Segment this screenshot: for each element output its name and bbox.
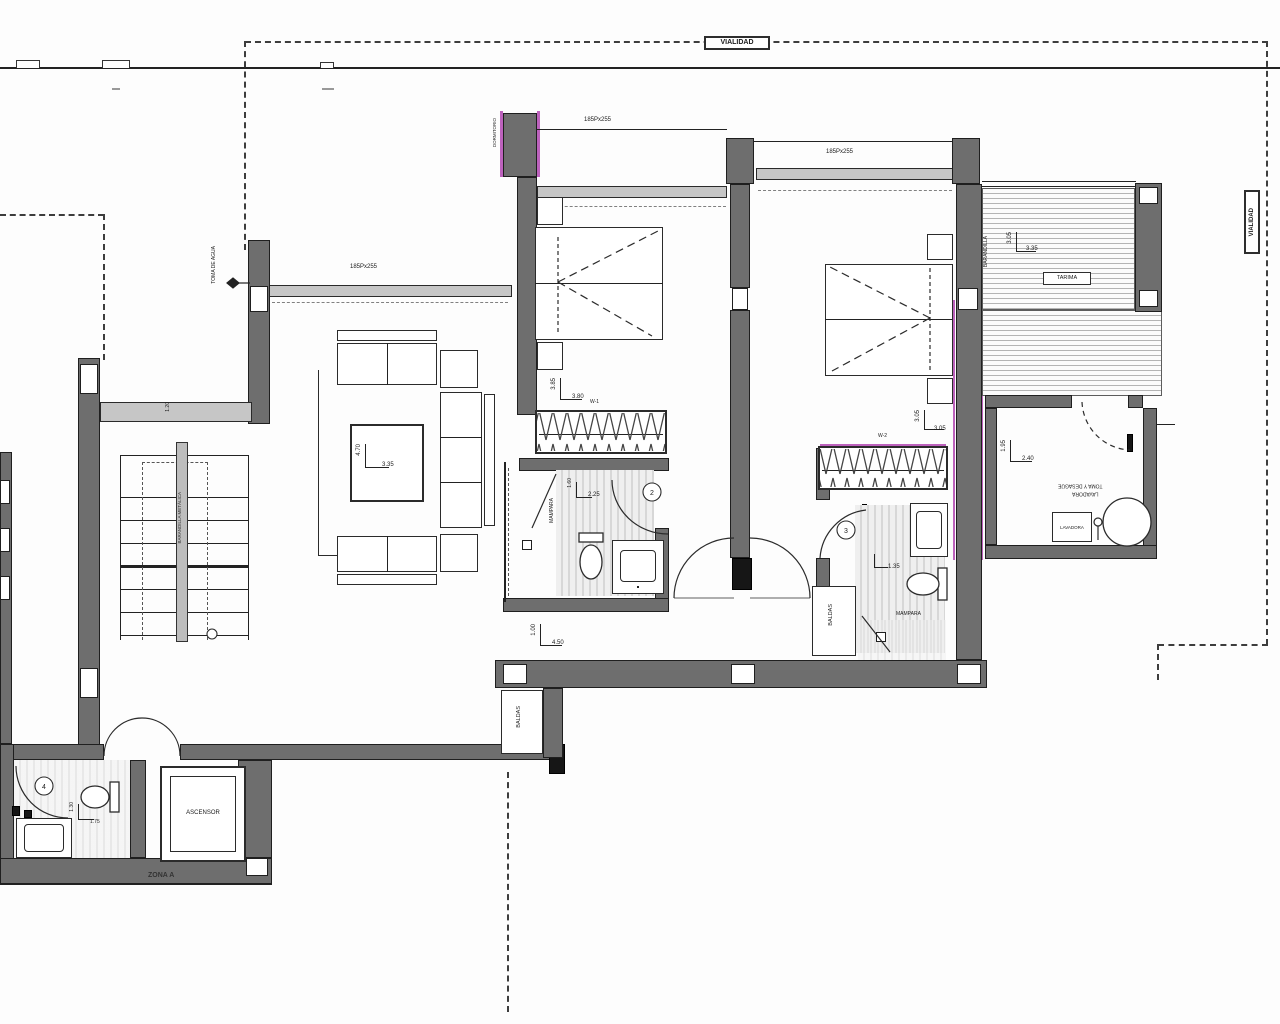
window-dash-line xyxy=(272,302,508,303)
terrace-rail-label: BARANDILLA xyxy=(984,236,989,267)
wall-lavadero-left xyxy=(985,408,997,545)
dim-terraza-v: 3.05 xyxy=(1007,232,1013,244)
door-arc-hall-right xyxy=(750,538,810,598)
wall-accent xyxy=(953,300,955,560)
wall-entry-band xyxy=(0,744,104,760)
closet-label: BALDAS xyxy=(829,604,835,626)
dim-aseo-v: 1.30 xyxy=(70,802,75,812)
wall-pillar xyxy=(503,113,537,177)
pillar-inset xyxy=(731,664,755,684)
washing-machine-label: LAVADORA xyxy=(1052,524,1092,532)
dim-lavadero-v: 1.95 xyxy=(1001,440,1007,452)
shower2-area xyxy=(858,620,946,660)
terrace-deck-upper xyxy=(982,188,1135,310)
wall-lavadero-bottom xyxy=(985,545,1157,559)
tarima-label-box: TARIMA xyxy=(1043,272,1091,285)
tarima-label: TARIMA xyxy=(1057,276,1077,282)
window-terrace-right xyxy=(1139,187,1158,204)
sofa-divider xyxy=(440,482,482,483)
scale-notch xyxy=(102,60,130,68)
bed-dorm2 xyxy=(825,264,953,376)
window-terrace-right xyxy=(1139,290,1158,307)
nightstand xyxy=(927,234,953,260)
wall-bedroom1-left xyxy=(517,177,537,415)
wall-end-cap xyxy=(732,558,752,590)
door-arc-lavadero xyxy=(1082,402,1130,450)
scale-tick xyxy=(112,88,120,90)
street-label: VIALIDAD xyxy=(720,39,753,46)
facade-line xyxy=(537,129,727,130)
vanity-basin xyxy=(916,511,942,549)
sofa-corner-seat xyxy=(440,350,478,388)
dormitorio-tag: DORMITORIO xyxy=(493,118,498,147)
dim-hall-v: 1.00 xyxy=(531,624,537,636)
sofa-back xyxy=(337,574,437,585)
dim-dorm1-tag: W-1 xyxy=(590,400,599,405)
pillar-inset xyxy=(957,664,981,684)
elevator-label: ASCENSOR xyxy=(170,808,236,818)
window-salon xyxy=(268,285,512,297)
nightstand xyxy=(537,342,563,370)
dim-salon-v: 4.70 xyxy=(356,444,362,456)
wall-accent xyxy=(537,111,540,177)
boundary-dashed xyxy=(1157,644,1159,680)
sofa-back xyxy=(484,394,495,526)
dim-corner xyxy=(78,804,94,820)
door-arc-entrance-left xyxy=(104,718,142,756)
mampara-label: MAMPARA xyxy=(550,498,555,523)
scale-notch xyxy=(16,60,40,68)
wall-pillar xyxy=(952,138,980,184)
bed-center-line xyxy=(825,319,953,320)
sofa-divider xyxy=(387,536,388,572)
window-left xyxy=(80,668,98,698)
wall-lavadero-right xyxy=(1143,408,1157,548)
street-label-right: VIALIDAD xyxy=(1249,208,1255,236)
closet-label: BALDAS xyxy=(517,706,523,728)
window-center xyxy=(732,288,748,310)
wall-closet-right xyxy=(543,688,563,758)
boundary-dashed xyxy=(103,214,105,360)
stair-rail-label: BARANDILLA METÁLICA xyxy=(178,492,183,544)
closet-rod xyxy=(539,434,663,435)
door-arc-hall-left xyxy=(674,538,734,598)
sofa-right xyxy=(440,392,482,528)
shower-drain xyxy=(522,540,532,550)
sofa-back xyxy=(337,330,437,341)
nightstand xyxy=(927,378,953,404)
boundary-tie-line xyxy=(1157,424,1175,425)
stair-rail xyxy=(248,455,249,640)
window-terrace xyxy=(958,288,978,310)
terrace-deck-lower xyxy=(982,310,1162,396)
site-top-line xyxy=(0,67,1280,69)
window-far-left xyxy=(0,576,10,600)
pillar-inset xyxy=(503,664,527,684)
closet-dorm1 xyxy=(535,410,667,454)
window-dash-line xyxy=(540,206,726,207)
dim-bath1-v: 1.60 xyxy=(568,478,573,488)
dim-aseo-h: 1.75 xyxy=(90,820,100,825)
dim-dorm1-h: 3.80 xyxy=(572,394,584,400)
water-intake-arrow xyxy=(227,278,250,288)
door-arc-entrance-right xyxy=(142,718,180,756)
dim-terraza-h: 3.35 xyxy=(1026,246,1038,252)
sofa-divider xyxy=(440,437,482,438)
dim-paso: 1.20 xyxy=(166,402,171,412)
door-number-bath2: 3 xyxy=(844,528,848,535)
window-left xyxy=(80,364,98,394)
window-bedroom2 xyxy=(756,168,954,180)
vanity-basin xyxy=(620,550,656,582)
terrace-edge xyxy=(982,181,1136,182)
closet-dorm2 xyxy=(818,446,948,490)
wall-bath1-leftline xyxy=(504,462,506,602)
window-bedroom1 xyxy=(537,186,727,198)
wall-toma-column xyxy=(248,240,270,424)
sofa-divider xyxy=(387,343,388,385)
street-label-box-right: VIALIDAD xyxy=(1244,190,1260,254)
scale-tick xyxy=(322,88,334,90)
toma-desague-label-1: TOMA Y DESAGÜE xyxy=(1058,482,1102,487)
dim-hall-h: 4.50 xyxy=(552,640,564,646)
wall-lavadero-stub xyxy=(1128,395,1143,408)
wall-lavadero-top xyxy=(985,395,1072,408)
wall-left-band xyxy=(100,402,252,422)
window-label-salon: 185Px255 xyxy=(350,264,377,270)
boundary-dashed xyxy=(0,214,104,216)
stair-void-dashed xyxy=(142,462,208,640)
nightstand xyxy=(537,197,563,225)
street-label-box: VIALIDAD xyxy=(704,36,770,50)
dim-salon-h: 3.35 xyxy=(382,462,394,468)
wall-pillar xyxy=(726,138,754,184)
toma-agua-label: TOMA DE AGUA xyxy=(212,246,217,284)
dim-lavadero-h: 2.40 xyxy=(1022,456,1034,462)
dim-corner xyxy=(874,554,888,568)
dim-dorm2-tag: W-2 xyxy=(878,434,887,439)
boundary-dashed xyxy=(1266,41,1268,645)
facade-line xyxy=(754,141,954,142)
door-leaf xyxy=(1127,434,1133,452)
window-dash-line xyxy=(758,190,952,191)
dim-bath2-h: 1.35 xyxy=(888,564,900,570)
stair-newel xyxy=(207,629,217,639)
window-label-dorm2: 185Px255 xyxy=(826,149,853,155)
zone-label: ZONA A xyxy=(148,872,174,879)
scale-notch xyxy=(320,62,334,68)
window-far-left xyxy=(0,480,10,504)
bed-center-line xyxy=(535,283,663,284)
toma-desague-label-2: LAVADORA xyxy=(1072,490,1099,495)
window-label-dorm1: 185Px255 xyxy=(584,117,611,123)
mampara-label: MAMPARA xyxy=(896,612,921,617)
window-far-left xyxy=(0,528,10,552)
descalcificador-label: DESCALCIFICADOR xyxy=(1101,518,1153,526)
wall-center-upper xyxy=(730,184,750,288)
vanity-basin xyxy=(24,824,64,852)
vanity-dot xyxy=(637,586,639,588)
shower1-area xyxy=(508,468,554,596)
pillar-inset xyxy=(246,858,268,876)
porch-step-line xyxy=(0,884,272,885)
wall-bath1-bottom xyxy=(503,598,669,612)
dim-dorm1-v: 3.85 xyxy=(551,378,557,390)
boundary-dashed xyxy=(244,41,246,250)
wall-bedroom2-right xyxy=(956,184,982,660)
door-leaf xyxy=(12,806,20,816)
door-leaf xyxy=(24,810,32,818)
window-toma-column xyxy=(250,286,268,312)
closet-rod xyxy=(822,470,944,471)
dim-bath1-h: 2.25 xyxy=(588,492,600,498)
dim-dorm2-h: 3.05 xyxy=(934,426,946,432)
terrace-edge xyxy=(982,186,1136,187)
boundary-dashed xyxy=(1158,644,1268,646)
sofa-corner-seat xyxy=(440,534,478,572)
floor-plan: VIALIDAD VIALIDAD xyxy=(0,0,1280,1024)
boundary-dashed xyxy=(507,772,509,1012)
dim-dorm2-v: 3.05 xyxy=(915,410,921,422)
shower-drain xyxy=(876,632,886,642)
wall-aseo-divider xyxy=(130,760,146,858)
wall-center-lower xyxy=(730,310,750,558)
